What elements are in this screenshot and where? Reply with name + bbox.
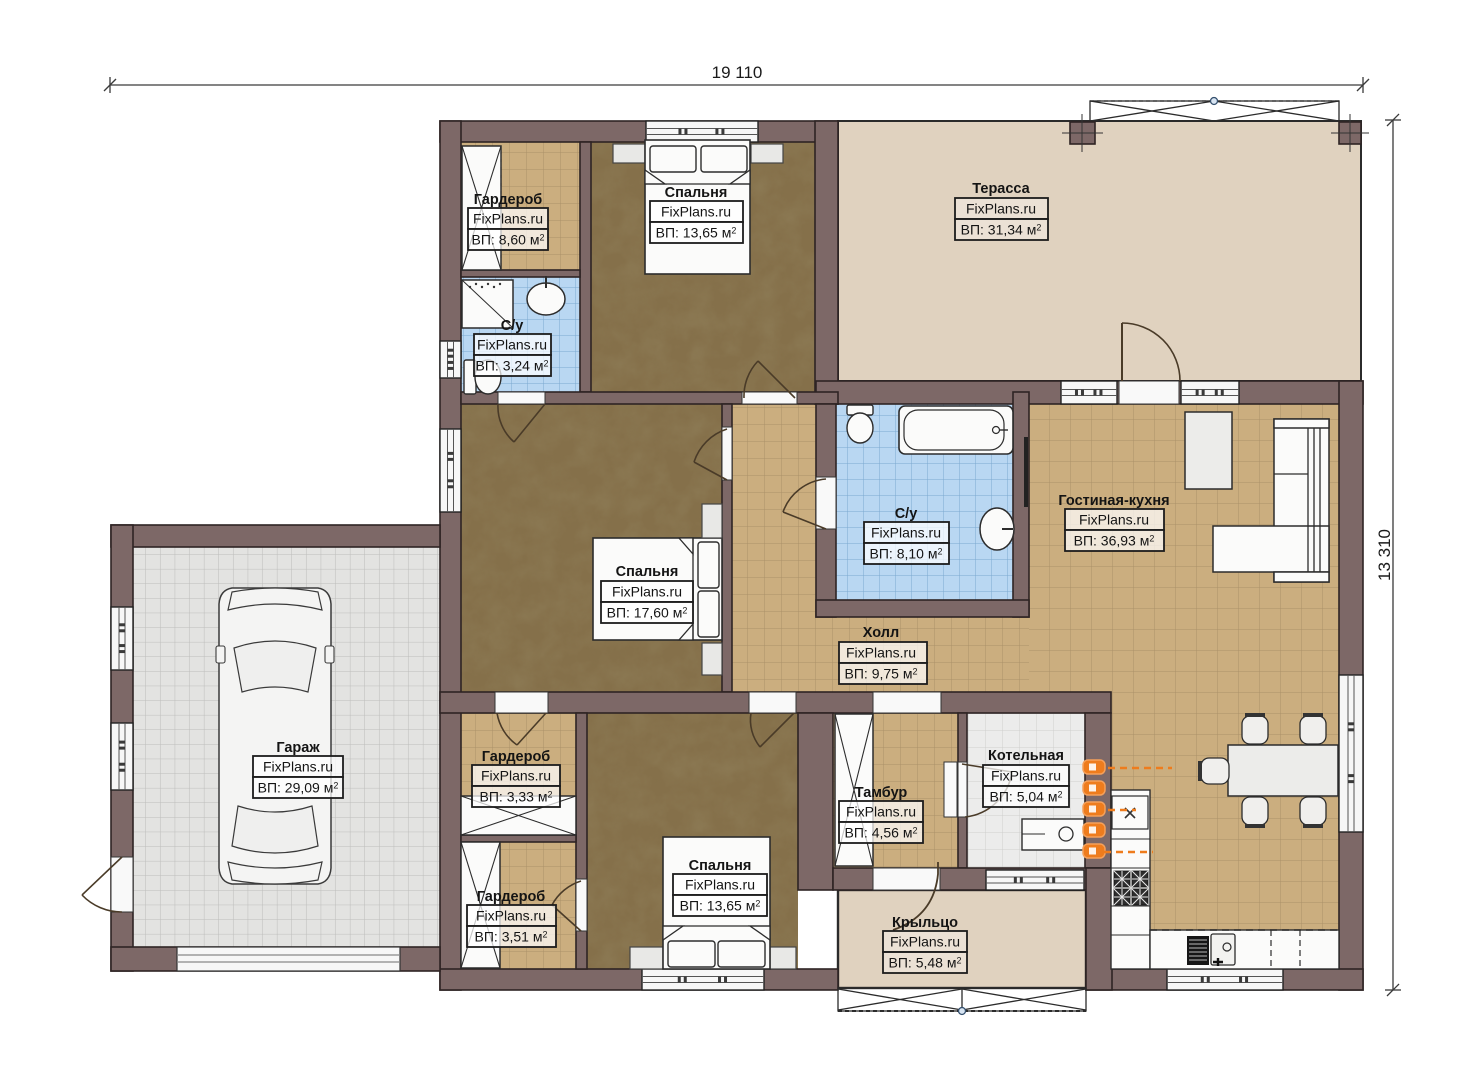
svg-text:Гараж: Гараж (276, 740, 320, 756)
svg-text:Котельная: Котельная (988, 748, 1064, 764)
svg-text:ВП: 3,51 м2: ВП: 3,51 м2 (475, 929, 548, 945)
svg-text:FixPlans.ru: FixPlans.ru (481, 768, 551, 784)
svg-text:FixPlans.ru: FixPlans.ru (846, 645, 916, 661)
svg-text:FixPlans.ru: FixPlans.ru (846, 804, 916, 820)
svg-text:Спальня: Спальня (665, 185, 728, 201)
svg-text:FixPlans.ru: FixPlans.ru (890, 934, 960, 950)
svg-text:FixPlans.ru: FixPlans.ru (661, 204, 731, 220)
svg-text:FixPlans.ru: FixPlans.ru (263, 759, 333, 775)
svg-text:Гардероб: Гардероб (482, 749, 551, 765)
svg-text:FixPlans.ru: FixPlans.ru (476, 908, 546, 924)
svg-text:FixPlans.ru: FixPlans.ru (685, 877, 755, 893)
svg-text:Спальня: Спальня (689, 858, 752, 874)
svg-text:Гардероб: Гардероб (474, 192, 543, 208)
svg-text:FixPlans.ru: FixPlans.ru (473, 211, 543, 227)
svg-text:ВП: 3,24 м2: ВП: 3,24 м2 (476, 358, 549, 374)
svg-text:19 110: 19 110 (712, 63, 763, 82)
svg-text:ВП: 13,65 м2: ВП: 13,65 м2 (656, 225, 737, 241)
svg-text:Спальня: Спальня (616, 564, 679, 580)
svg-text:ВП: 9,75 м2: ВП: 9,75 м2 (845, 666, 918, 682)
svg-text:FixPlans.ru: FixPlans.ru (1079, 512, 1149, 528)
svg-text:Холл: Холл (863, 625, 899, 641)
svg-text:ВП: 17,60 м2: ВП: 17,60 м2 (607, 605, 688, 621)
svg-text:Крыльцо: Крыльцо (892, 915, 958, 931)
svg-text:Терасса: Терасса (972, 181, 1030, 197)
svg-text:Гардероб: Гардероб (477, 889, 546, 905)
svg-text:ВП: 36,93 м2: ВП: 36,93 м2 (1074, 533, 1155, 549)
svg-text:ВП: 8,10 м2: ВП: 8,10 м2 (870, 546, 943, 562)
svg-text:ВП: 5,04 м2: ВП: 5,04 м2 (990, 789, 1063, 805)
svg-text:Тамбур: Тамбур (855, 785, 908, 801)
svg-text:ВП: 8,60 м2: ВП: 8,60 м2 (472, 232, 545, 248)
svg-text:С/у: С/у (895, 506, 918, 522)
svg-text:С/у: С/у (501, 318, 524, 334)
svg-text:FixPlans.ru: FixPlans.ru (871, 525, 941, 541)
svg-text:FixPlans.ru: FixPlans.ru (477, 337, 547, 353)
svg-text:ВП: 5,48 м2: ВП: 5,48 м2 (889, 955, 962, 971)
svg-text:13 310: 13 310 (1375, 529, 1394, 581)
svg-text:FixPlans.ru: FixPlans.ru (991, 768, 1061, 784)
svg-text:ВП: 29,09 м2: ВП: 29,09 м2 (258, 780, 339, 796)
svg-text:Гостиная-кухня: Гостиная-кухня (1058, 493, 1169, 509)
svg-text:ВП: 13,65 м2: ВП: 13,65 м2 (680, 898, 761, 914)
svg-text:ВП: 4,56 м2: ВП: 4,56 м2 (845, 825, 918, 841)
svg-text:ВП: 3,33 м2: ВП: 3,33 м2 (480, 789, 553, 805)
svg-text:FixPlans.ru: FixPlans.ru (612, 584, 682, 600)
svg-text:ВП: 31,34 м2: ВП: 31,34 м2 (961, 222, 1042, 238)
svg-text:FixPlans.ru: FixPlans.ru (966, 201, 1036, 217)
